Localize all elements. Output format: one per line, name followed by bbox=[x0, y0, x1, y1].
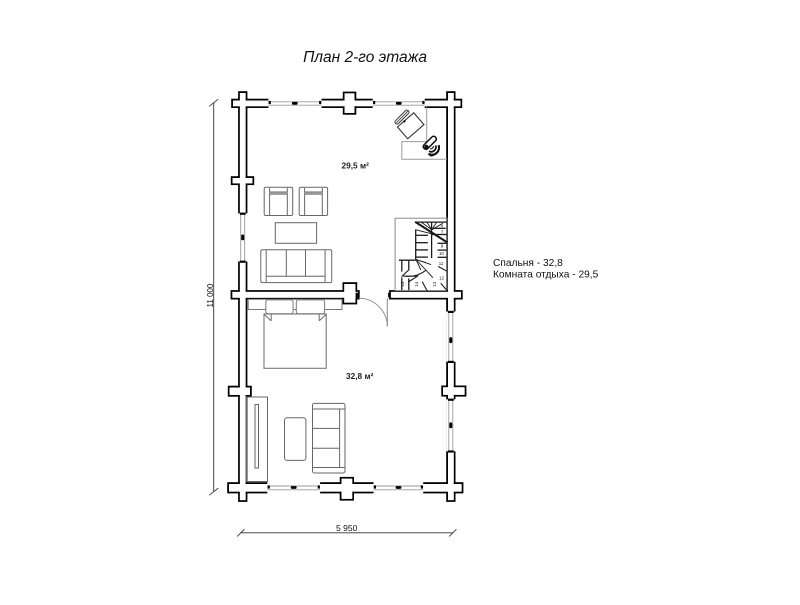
svg-text:29,5 м²: 29,5 м² bbox=[342, 161, 370, 171]
svg-text:12: 12 bbox=[439, 276, 444, 281]
svg-text:14: 14 bbox=[414, 281, 419, 286]
svg-text:32,8 м²: 32,8 м² bbox=[346, 371, 374, 381]
svg-text:13: 13 bbox=[432, 281, 437, 286]
svg-text:5 950: 5 950 bbox=[336, 523, 358, 533]
svg-text:Спальня - 32,8: Спальня - 32,8 bbox=[493, 258, 563, 269]
svg-text:11: 11 bbox=[439, 261, 444, 266]
svg-text:План 2-го этажа: План 2-го этажа bbox=[303, 49, 427, 66]
svg-text:15: 15 bbox=[400, 281, 405, 286]
svg-text:11 000: 11 000 bbox=[206, 283, 215, 307]
svg-text:Комната отдыха - 29,5: Комната отдыха - 29,5 bbox=[493, 269, 599, 280]
svg-text:10: 10 bbox=[439, 251, 444, 256]
